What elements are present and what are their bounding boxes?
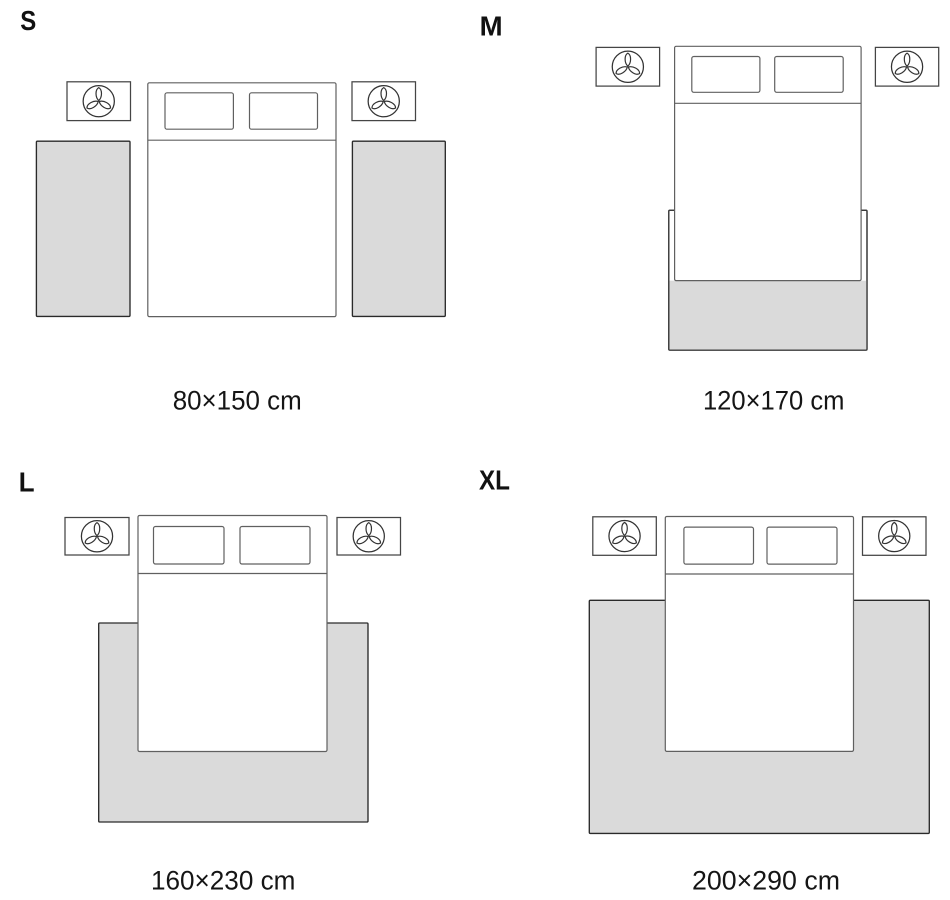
svg-text:200×290 cm: 200×290 cm xyxy=(692,866,840,896)
svg-text:S: S xyxy=(20,5,36,36)
svg-text:120×170 cm: 120×170 cm xyxy=(703,386,845,416)
svg-text:160×230 cm: 160×230 cm xyxy=(151,866,296,896)
svg-text:L: L xyxy=(19,466,35,497)
svg-text:M: M xyxy=(480,11,503,42)
svg-text:80×150 cm: 80×150 cm xyxy=(173,386,302,416)
svg-text:XL: XL xyxy=(479,464,510,495)
